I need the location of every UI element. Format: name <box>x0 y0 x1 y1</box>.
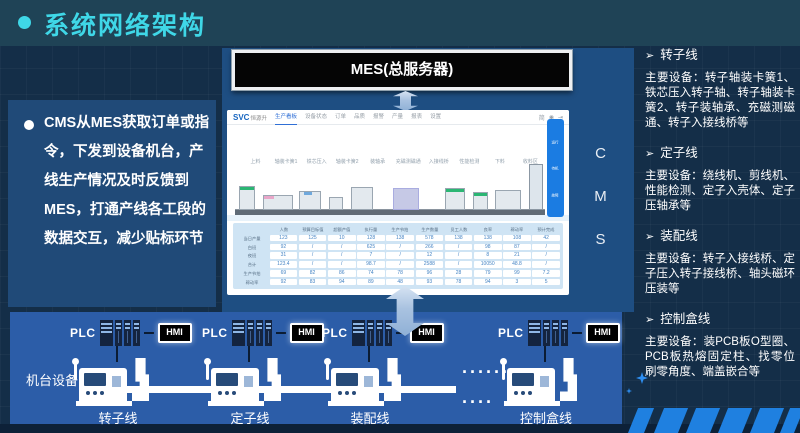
line-section-body: 主要设备：绕线机、剪线机、性能检测、定子入壳体、定子压轴承等 <box>645 169 795 214</box>
line-section-body: 主要设备：转子轴装卡簧1、铁芯压入转子轴、转子轴装卡簧2、转子装轴承、充磁测磁通… <box>645 71 795 131</box>
cms-app-window: SVC恒源升 生产看板设备状态订单品质报警产量报表设置 简 ◉ ⇥ 上料 轴装卡… <box>227 110 569 295</box>
table-cell: 92 <box>270 279 298 286</box>
app-nav-item[interactable]: 订单 <box>335 110 346 125</box>
table-cell: 83 <box>299 279 327 286</box>
plc-rack-icon <box>352 320 392 346</box>
line-section: ➢装配线 主要设备：转子入接线桥、定子压入转子接线桥、轴头磁环压装等 <box>645 225 795 297</box>
table-cell: / <box>386 244 414 251</box>
machine-icon <box>324 356 416 406</box>
line-machine-graphic <box>393 188 419 210</box>
table-cell: / <box>328 244 356 251</box>
table-cell: 10050 <box>474 261 502 268</box>
table-cell: 125 <box>299 235 327 242</box>
hmi-icon: HMI <box>586 323 620 343</box>
table-header: 执行量 <box>359 227 383 233</box>
app-nav-item[interactable]: 设置 <box>430 110 441 125</box>
app-logo: SVC恒源升 <box>233 113 267 122</box>
app-nav-item[interactable]: 设备状态 <box>305 110 327 125</box>
table-cell: 28 <box>445 270 473 277</box>
line-machine-graphic <box>445 188 465 210</box>
line-machine-graphic <box>473 192 488 210</box>
line-section: ➢转子线 主要设备：转子轴装卡簧1、铁芯压入转子轴、转子轴装卡簧2、转子装轴承、… <box>645 44 795 131</box>
app-nav-item[interactable]: 生产看板 <box>275 110 297 125</box>
table-cell: / <box>328 261 356 268</box>
table-cell: / <box>445 244 473 251</box>
plc-group: PLC HMI 定子线 <box>202 320 334 420</box>
app-nav-item[interactable]: 报警 <box>373 110 384 125</box>
legend-item: 故障 <box>550 191 560 199</box>
table-cell: 93 <box>416 279 444 286</box>
table-header: 人数 <box>272 227 296 233</box>
table-cell: 98.7 <box>357 261 385 268</box>
station-status: 性能检测 <box>455 150 484 168</box>
plc-label: PLC <box>322 326 348 340</box>
plc-row: PLC HMI <box>202 320 324 346</box>
line-label: 定子线 <box>202 408 298 427</box>
table-header: 良率 <box>476 227 500 233</box>
line-machine-graphic <box>239 186 255 210</box>
table-cell: 48 <box>386 279 414 286</box>
table-row-label: 稼动率 <box>238 279 265 285</box>
table-cell: 123 <box>270 235 298 242</box>
arrow-bullet-icon: ➢ <box>645 50 654 62</box>
station-label: 装轴承 <box>370 159 385 165</box>
table-cell: 87 <box>503 244 531 251</box>
table-cell: / <box>532 244 560 251</box>
production-line-graphic <box>235 188 557 215</box>
production-table: 人数预算目标值超额产值执行量生产节拍生产数量员工人数良率稼动率预计完成当日产量1… <box>233 223 563 289</box>
sparkle-icon <box>626 388 632 394</box>
table-cell: 86 <box>328 270 356 277</box>
table-cell: 138 <box>445 235 473 242</box>
table-cell: 74 <box>357 270 385 277</box>
table-cell: 128 <box>357 235 385 242</box>
legend-label: 待机 <box>552 166 559 171</box>
table-cell: 108 <box>503 235 531 242</box>
arrow-bullet-icon: ➢ <box>645 314 654 326</box>
line-machine-graphic <box>529 164 543 210</box>
plc-label: PLC <box>498 326 524 340</box>
machine-icon <box>204 356 296 406</box>
station-status: 轴装卡簧1 <box>272 150 301 168</box>
table-cell: / <box>299 252 327 259</box>
table-row-label: 当日产量 <box>238 235 265 241</box>
table-cell: 69 <box>270 270 298 277</box>
station-status: 充磁测磁通 <box>394 150 423 168</box>
intro-bullet-icon <box>24 120 34 130</box>
table-cell: / <box>532 252 560 259</box>
plc-group: PLC HMI 装配线 <box>322 320 454 420</box>
title-bullet-icon <box>18 16 31 29</box>
table-header: 稼动率 <box>505 227 529 233</box>
table-header: 超额产值 <box>330 227 354 233</box>
table-cell: 7 <box>357 252 385 259</box>
table-cell: 2588 <box>416 261 444 268</box>
line-machine-graphic <box>329 197 343 210</box>
table-cell: 96 <box>416 270 444 277</box>
plc-label: PLC <box>202 326 228 340</box>
table-cell: 31 <box>270 252 298 259</box>
station-label: 轴装卡簧1 <box>275 159 298 165</box>
cms-letter-c: C <box>590 145 612 188</box>
station-status-row: 上料 轴装卡簧1 铁芯压入 轴装卡簧2 装轴承 充磁测磁通 入接线桥 性能检测 … <box>241 150 545 168</box>
sparkle-icon <box>636 372 648 384</box>
table-row-label: 白班 <box>238 244 265 250</box>
line-machine-graphic <box>495 190 521 210</box>
plc-hmi-wire <box>276 332 286 334</box>
plc-label: PLC <box>70 326 96 340</box>
intro-text: CMS从MES获取订单或指令，下发到设备机台，产线生产情况及时反馈到MES，打通… <box>44 109 210 254</box>
station-status: 轴装卡簧2 <box>333 150 362 168</box>
table-cell: 578 <box>416 235 444 242</box>
plc-group: PLC HMI 控制盒线 <box>498 320 630 420</box>
app-navbar: SVC恒源升 生产看板设备状态订单品质报警产量报表设置 简 ◉ ⇥ <box>227 110 569 125</box>
table-cell: 625 <box>357 244 385 251</box>
table-cell: 92 <box>270 244 298 251</box>
line-machine-graphic <box>299 191 321 210</box>
table-header: 生产节拍 <box>388 227 412 233</box>
table-cell: / <box>386 261 414 268</box>
station-label: 轴装卡簧2 <box>336 159 359 165</box>
line-section-heading: ➢转子线 <box>645 44 795 63</box>
station-status: 装轴承 <box>363 150 392 168</box>
table-header: 生产数量 <box>418 227 442 233</box>
table-cell: 12 <box>416 252 444 259</box>
table-cell: 8 <box>474 252 502 259</box>
line-machine-graphic <box>263 195 293 210</box>
line-section: ➢定子线 主要设备：绕线机、剪线机、性能检测、定子入壳体、定子压轴承等 <box>645 142 795 214</box>
table-header: 员工人数 <box>447 227 471 233</box>
cms-letter-s: S <box>590 231 612 274</box>
slide: 系统网络架构 CMS从MES获取订单或指令，下发到设备机台，产线生产情况及时反馈… <box>0 0 800 433</box>
line-descriptions: ➢转子线 主要设备：转子轴装卡簧1、铁芯压入转子轴、转子轴装卡簧2、转子装轴承、… <box>645 44 795 391</box>
plc-rack-icon <box>232 320 272 346</box>
station-label: 上料 <box>250 159 260 165</box>
table-cell: 82 <box>299 270 327 277</box>
station-status: 下料 <box>485 150 514 168</box>
table-cell: 5 <box>532 279 560 286</box>
floor-strip <box>227 215 569 221</box>
station-label: 充磁测磁通 <box>396 159 421 165</box>
table-cell: / <box>299 244 327 251</box>
header-band: 系统网络架构 <box>0 0 800 46</box>
arrow-bullet-icon: ➢ <box>645 231 654 243</box>
arrow-bullet-icon: ➢ <box>645 148 654 160</box>
station-label: 性能检测 <box>459 159 479 165</box>
table-cell: 98 <box>474 244 502 251</box>
table-header: 预算目标值 <box>301 227 325 233</box>
plc-row: PLC HMI <box>498 320 620 346</box>
plc-hmi-wire <box>572 332 582 334</box>
legend-label: 运行 <box>552 140 559 145</box>
table-cell: 138 <box>386 235 414 242</box>
table-cell: 10 <box>328 235 356 242</box>
intro-panel: CMS从MES获取订单或指令，下发到设备机台，产线生产情况及时反馈到MES，打通… <box>8 100 216 307</box>
table-cell: 48.8 <box>503 261 531 268</box>
line-label: 装配线 <box>322 408 418 427</box>
table-cell: / <box>445 261 473 268</box>
legend-item: 待机 <box>550 164 560 172</box>
station-label: 下料 <box>495 159 505 165</box>
station-label: 铁芯压入 <box>307 159 327 165</box>
table-cell: 79 <box>474 270 502 277</box>
table-cell: 42 <box>532 235 560 242</box>
table-cell: 7.2 <box>532 270 560 277</box>
line-section-body: 主要设备：转子入接线桥、定子压入转子接线桥、轴头磁环压装等 <box>645 252 795 297</box>
machine-icon <box>500 356 592 406</box>
ellipsis-dots: ···· <box>462 397 494 407</box>
machine-icon <box>72 356 164 406</box>
app-nav-item[interactable]: 产量 <box>392 110 403 125</box>
table-cell: / <box>445 252 473 259</box>
machine-floor-panel: 机台设备： ······ ···· PLC HMI 转子线 PLC HMI <box>10 312 622 424</box>
station-status: 入接线桥 <box>424 150 453 168</box>
table-cell: / <box>299 261 327 268</box>
table-row-label: 夜班 <box>238 253 265 259</box>
cms-label: C M S <box>590 145 612 274</box>
hmi-icon: HMI <box>158 323 192 343</box>
app-nav-item[interactable]: 品质 <box>354 110 365 125</box>
plc-rack-icon <box>100 320 140 346</box>
cms-letter-m: M <box>590 188 612 231</box>
table-cell: / <box>386 252 414 259</box>
table-row-label: 合计 <box>238 262 265 268</box>
status-legend: 运行 待机 故障 <box>547 119 564 217</box>
table-cell: 89 <box>357 279 385 286</box>
table-cell: 266 <box>416 244 444 251</box>
table-header: 预计完成 <box>534 227 558 233</box>
line-section-heading: ➢装配线 <box>645 225 795 244</box>
line-machine-graphic <box>351 187 373 210</box>
legend-item: 运行 <box>550 138 560 146</box>
plc-row: PLC HMI <box>70 320 192 346</box>
station-status: 铁芯压入 <box>302 150 331 168</box>
line-label: 转子线 <box>70 408 166 427</box>
legend-label: 故障 <box>552 193 559 198</box>
station-status: 上料 <box>241 150 270 168</box>
logo-watermark <box>612 360 800 433</box>
table-header <box>238 227 265 233</box>
plc-group: PLC HMI 转子线 <box>70 320 202 420</box>
table-cell: 3 <box>503 279 531 286</box>
plc-rack-icon <box>528 320 568 346</box>
station-label: 入接线桥 <box>429 159 449 165</box>
table-cell: 94 <box>474 279 502 286</box>
line-section-heading: ➢定子线 <box>645 142 795 161</box>
table-cell: 94 <box>328 279 356 286</box>
table-cell: 138 <box>474 235 502 242</box>
app-nav: 生产看板设备状态订单品质报警产量报表设置 <box>275 110 449 125</box>
table-cell: 21 <box>503 252 531 259</box>
page-title: 系统网络架构 <box>44 6 206 42</box>
plc-hmi-wire <box>144 332 154 334</box>
hmi-icon: HMI <box>290 323 324 343</box>
table-cell: / <box>532 261 560 268</box>
table-cell: 99 <box>503 270 531 277</box>
table-row-label: 生产节拍 <box>238 271 265 277</box>
table-cell: / <box>328 252 356 259</box>
mes-server-box: MES(总服务器) <box>232 50 572 90</box>
plc-row: PLC HMI <box>322 320 444 346</box>
table-cell: 123.4 <box>270 261 298 268</box>
lang-icon[interactable]: 简 <box>539 113 545 122</box>
line-label: 控制盒线 <box>498 408 594 427</box>
table-cell: 78 <box>386 270 414 277</box>
app-nav-item[interactable]: 报表 <box>411 110 422 125</box>
line-section-heading: ➢控制盒线 <box>645 308 795 327</box>
table-cell: 78 <box>445 279 473 286</box>
